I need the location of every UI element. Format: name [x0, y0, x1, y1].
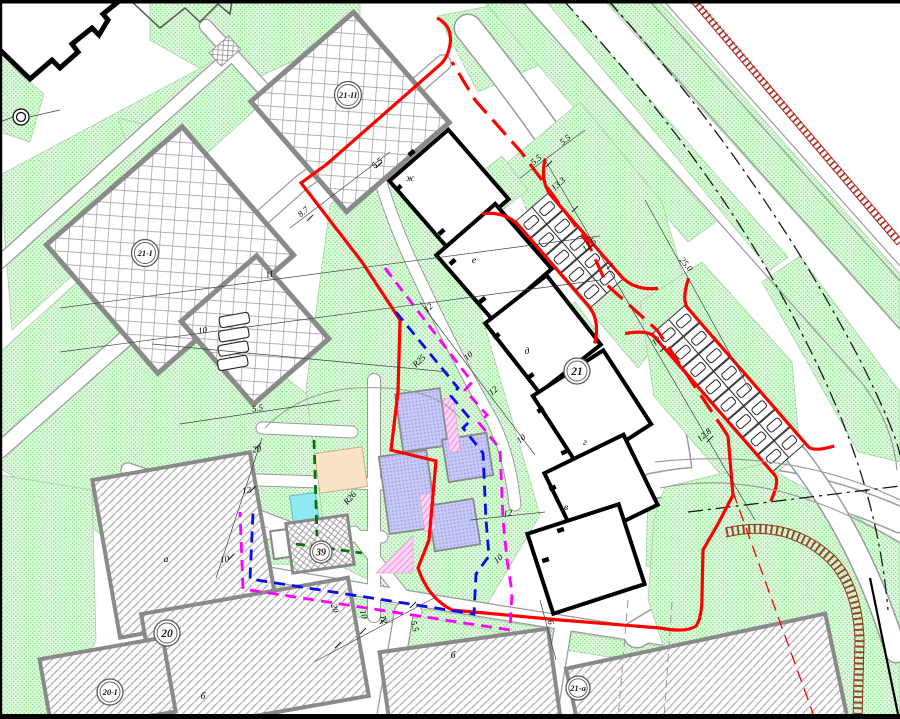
svg-text:21-II: 21-II — [338, 90, 358, 100]
section-letter: д — [525, 346, 530, 357]
svg-text:20: 20 — [160, 628, 173, 640]
site-plan-page: 5.5 8.7 5.5 5.5 13.3 12.5 25.0 12 12.8 1… — [0, 0, 900, 719]
label-39: 39 — [310, 541, 332, 563]
section-letter: е — [472, 256, 476, 266]
dim-label: 8.7 — [296, 204, 311, 219]
dim-label: 12 — [503, 508, 513, 519]
section-letter: в — [564, 503, 568, 513]
svg-text:21: 21 — [570, 366, 583, 378]
svg-text:21-I: 21-I — [137, 248, 153, 258]
section-letter: ж — [406, 174, 415, 184]
section-letter: г — [583, 438, 587, 448]
label-21-a: 21-a — [566, 676, 590, 700]
label-20-I: 20-I — [97, 679, 123, 705]
site-plan-svg: 5.5 8.7 5.5 5.5 13.3 12.5 25.0 12 12.8 1… — [0, 0, 900, 719]
section-letter: а — [164, 555, 169, 565]
svg-text:39: 39 — [315, 548, 326, 559]
svg-text:21-a: 21-a — [569, 683, 586, 693]
label-21-I: 21-I — [132, 240, 159, 267]
dim-label: 11 — [265, 269, 274, 280]
label-21-II: 21-II — [335, 82, 362, 109]
svg-text:20-I: 20-I — [102, 687, 118, 697]
sand-area — [314, 447, 367, 493]
label-20: 20 — [154, 620, 180, 646]
label-21: 21 — [564, 358, 590, 384]
playground-1 — [395, 388, 448, 452]
playground-4 — [428, 499, 481, 552]
